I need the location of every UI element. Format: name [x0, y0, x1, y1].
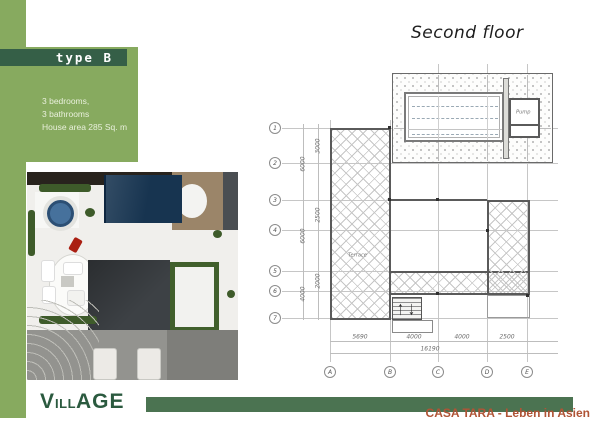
parked-car — [137, 348, 161, 380]
patio-table — [61, 276, 74, 287]
pool — [404, 92, 504, 142]
column-marker — [486, 229, 489, 232]
spec-bathrooms: 3 bathrooms — [42, 108, 127, 121]
dim-5690: 5690 — [352, 334, 367, 341]
terrace-label: Terrace — [348, 252, 367, 258]
plant-tuft — [213, 230, 222, 238]
spec-list: 3 bedrooms, 3 bathrooms House area 285 S… — [42, 95, 127, 134]
grid-bubble-col-a: A — [324, 366, 336, 378]
spec-area: House area 285 Sq. m — [42, 121, 127, 134]
dim-line-bottom — [330, 341, 558, 342]
water-line — [412, 118, 498, 119]
grid-bubble-col-d: D — [481, 366, 493, 378]
sofa — [41, 260, 55, 282]
grid-bubble-row-1: 1 — [269, 122, 281, 134]
column-marker — [436, 292, 439, 295]
grid-bubble-col-e: E — [521, 366, 533, 378]
dim-6000-b: 6000 — [300, 228, 307, 243]
dim-line-total — [330, 353, 558, 354]
swimming-pool — [104, 175, 182, 223]
plant-tuft — [227, 290, 235, 298]
dim-4000-v: 4000 — [300, 286, 307, 301]
logo-v: V — [40, 390, 55, 413]
terrace-west — [330, 128, 391, 320]
logo-ill: ILL — [55, 396, 76, 411]
hedge-bordered-roof — [170, 262, 219, 332]
grid-bubble-row-4: 4 — [269, 224, 281, 236]
page-title: Second floor — [411, 23, 523, 43]
jacuzzi — [43, 196, 78, 231]
spec-bedrooms: 3 bedrooms, — [42, 95, 127, 108]
grid-bubble-row-7: 7 — [269, 312, 281, 324]
type-banner: type B — [0, 49, 127, 66]
pump-room-label: Pump — [516, 109, 531, 115]
lawn-arcs — [27, 300, 99, 380]
water-line — [412, 106, 498, 107]
logo-age: AGE — [76, 390, 125, 413]
sofa — [63, 262, 83, 275]
villa-aerial-photo — [27, 172, 238, 380]
column-marker — [388, 198, 391, 201]
brochure-page: type B 3 bedrooms, 3 bathrooms House are… — [0, 0, 600, 424]
dim-total: 16190 — [420, 346, 439, 353]
grid-line-row — [282, 163, 558, 164]
grid-bubble-col-b: B — [384, 366, 396, 378]
dim-2000: 2000 — [315, 273, 322, 288]
grid-overlay — [487, 96, 488, 140]
dim-2500: 2500 — [315, 207, 322, 222]
grid-bubble-col-c: C — [432, 366, 444, 378]
grid-bubble-row-3: 3 — [269, 194, 281, 206]
pump-room-divider — [511, 124, 538, 126]
parked-car — [93, 348, 117, 380]
grid-overlay — [438, 96, 439, 140]
tagline: CASA TARA - Leben in Asien — [426, 406, 590, 420]
dim-6000-a: 6000 — [300, 156, 307, 171]
dim-4000-c: 4000 — [454, 334, 469, 341]
grid-bubble-row-5: 5 — [269, 265, 281, 277]
village-logo: VILLAGE — [40, 390, 125, 414]
hedge-left — [28, 210, 35, 256]
red-grill — [68, 237, 83, 254]
grid-bubble-row-6: 6 — [269, 285, 281, 297]
stairs: ↑ ↓ — [392, 297, 422, 320]
stair-landing — [392, 320, 433, 333]
pump-room: Pump — [509, 98, 540, 138]
dim-4000-b: 4000 — [406, 334, 421, 341]
dim-3000: 3000 — [315, 138, 322, 153]
room-outline — [391, 199, 487, 271]
column-marker — [436, 198, 439, 201]
driveway-dark — [167, 330, 238, 380]
plant-tuft — [85, 208, 95, 217]
balcony-outline — [487, 295, 530, 318]
roof-right-strip — [223, 172, 238, 230]
stairs-down-arrow: ↓ — [408, 299, 415, 318]
stairs-up-arrow: ↑ — [397, 299, 404, 318]
terrace-east — [487, 200, 530, 295]
column-marker — [526, 294, 529, 297]
grid-bubble-row-2: 2 — [269, 157, 281, 169]
type-label: type B — [56, 50, 113, 65]
hedge-top — [39, 184, 91, 192]
water-line — [412, 134, 498, 135]
dim-2500-b: 2500 — [499, 334, 514, 341]
column-marker — [388, 126, 391, 129]
